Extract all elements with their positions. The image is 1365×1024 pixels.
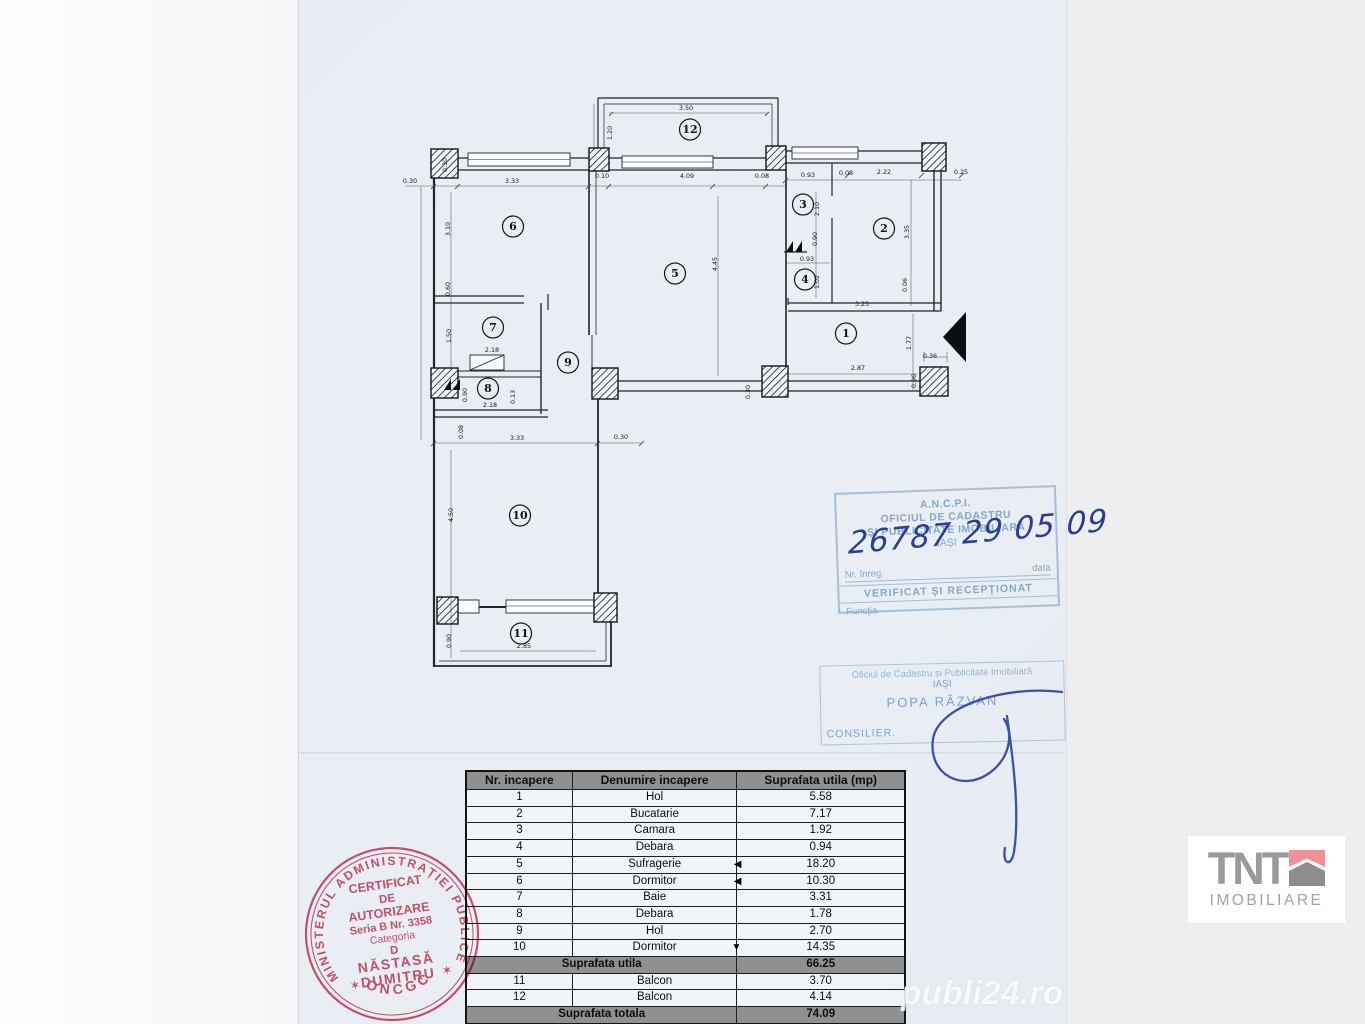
tnt-imobiliare-logo: TNT IMOBILIARE: [1188, 836, 1345, 923]
logo-title: TNT: [1208, 850, 1286, 888]
scanned-cadastral-document: 3.501.200.300.303.330.104.090.080.930.08…: [0, 0, 1365, 1024]
logo-subtitle: IMOBILIARE: [1210, 892, 1324, 910]
publi24-watermark: publi24.ro: [901, 974, 1064, 1012]
stamp-star-right: ✶: [441, 962, 454, 978]
certification-stamp-red: MINISTERUL ADMINISTRAȚIEI PUBLICE ONCGC …: [296, 840, 491, 1024]
stamp-center-text: CERTIFICAT DE AUTORIZARE Seria B Nr. 335…: [343, 872, 441, 992]
pen-signature: [0, 0, 1365, 1024]
house-icon: [1289, 850, 1325, 886]
